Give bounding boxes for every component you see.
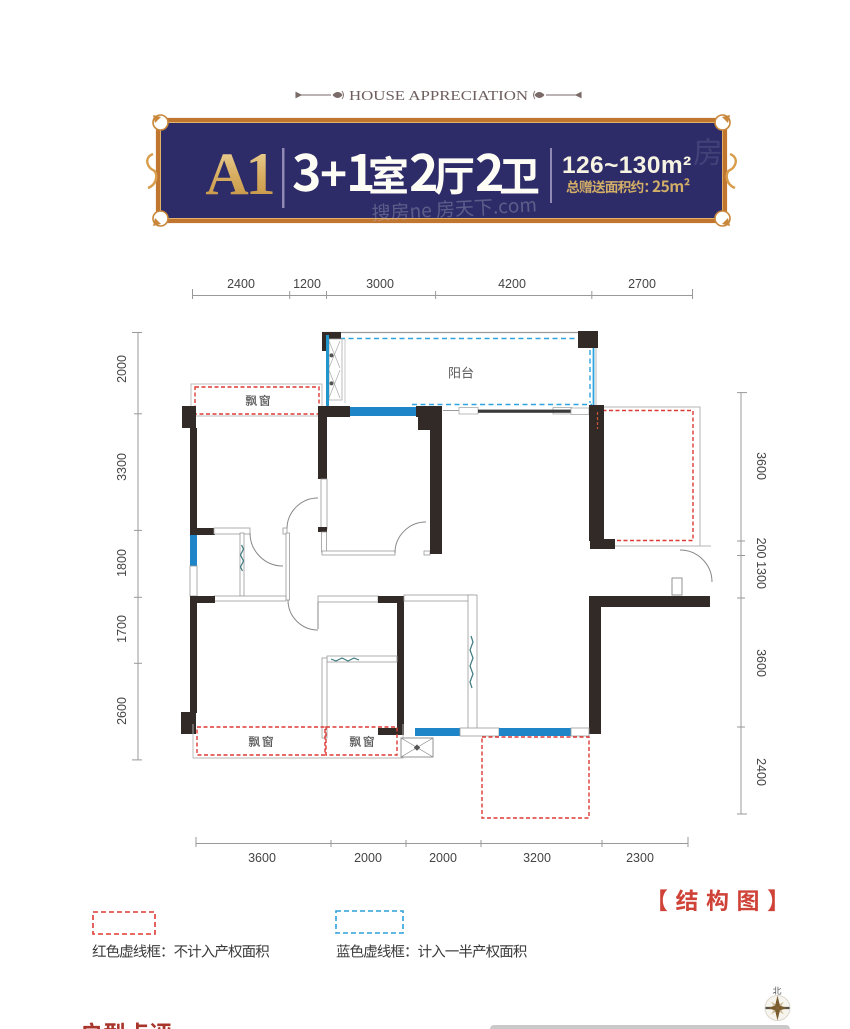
svg-text:2000: 2000 <box>354 851 382 865</box>
svg-text:2300: 2300 <box>626 851 654 865</box>
svg-text:3600: 3600 <box>754 452 768 480</box>
svg-text:A1: A1 <box>205 141 272 207</box>
svg-text:1200: 1200 <box>293 277 321 291</box>
svg-text:3300: 3300 <box>115 453 129 481</box>
svg-text:HOUSE APPRECIATION: HOUSE APPRECIATION <box>349 89 528 104</box>
svg-text:1700: 1700 <box>115 615 129 643</box>
svg-text:2600: 2600 <box>115 697 129 725</box>
svg-text:2000: 2000 <box>429 851 457 865</box>
svg-text:1800: 1800 <box>115 549 129 577</box>
svg-text:3600: 3600 <box>248 851 276 865</box>
svg-text:3600: 3600 <box>754 649 768 677</box>
svg-text:2400: 2400 <box>754 758 768 786</box>
svg-text:2000: 2000 <box>115 355 129 383</box>
svg-text:2700: 2700 <box>628 277 656 291</box>
svg-text:2400: 2400 <box>227 277 255 291</box>
svg-text:4200: 4200 <box>498 277 526 291</box>
svg-text:200: 200 <box>754 538 768 559</box>
svg-text:3200: 3200 <box>523 851 551 865</box>
svg-text:3000: 3000 <box>366 277 394 291</box>
svg-text:1300: 1300 <box>754 561 768 589</box>
svg-text:126~130m²: 126~130m² <box>562 152 692 179</box>
